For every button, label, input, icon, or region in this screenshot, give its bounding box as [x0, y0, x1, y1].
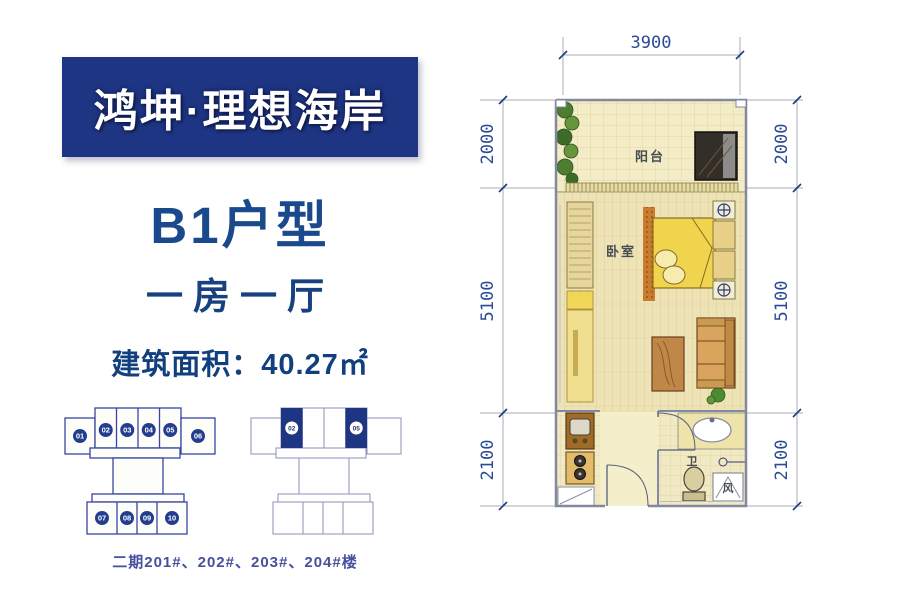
highlight-unit-02: 02	[288, 426, 296, 433]
building-keyplan-all-units: 01 02 03 04 05 06 07 08 09 10	[57, 398, 223, 540]
right-wall-cabinet-2	[713, 251, 735, 279]
area-label: 建筑面积：40.27㎡	[0, 341, 480, 383]
hall-floor	[600, 412, 658, 505]
kitchen-sink-unit	[566, 413, 594, 449]
bath-sink-counter	[678, 413, 746, 449]
flyer-page: 鸿坤·理想海岸 B1户型 一房一厅 建筑面积：40.27㎡ 01 02 03 0…	[0, 0, 900, 600]
dim-width-label: 3900	[631, 33, 672, 53]
right-wall-cabinet-1	[713, 221, 735, 249]
building-footprint-outline	[251, 408, 401, 534]
unit-03: 03	[123, 426, 131, 435]
unit-type-title: B1户型	[0, 184, 480, 258]
vent-label: 风	[723, 481, 734, 495]
dim-right-5100: 5100	[772, 281, 792, 322]
tv-cabinet	[567, 310, 593, 402]
vent-shaft: 风	[713, 473, 743, 501]
brand-name: 鸿坤·理想海岸	[94, 75, 387, 139]
bed	[653, 218, 715, 288]
dimension-top: 3900	[559, 33, 744, 95]
coffee-table	[652, 337, 684, 391]
floor-plan: 3900 2000 5100 2100 2000 5100 2100	[460, 15, 805, 545]
unit-06: 06	[194, 432, 202, 441]
layout-description: 一房一厅	[0, 266, 480, 320]
stove	[566, 452, 594, 484]
dim-left-2100: 2100	[478, 440, 498, 481]
brand-banner: 鸿坤·理想海岸	[62, 57, 418, 157]
balcony-window-band	[566, 183, 738, 192]
corner-unit	[567, 291, 593, 309]
balcony-cabinet	[695, 132, 737, 180]
bedroom-label: 卧室	[606, 244, 636, 259]
dim-left-5100: 5100	[478, 281, 498, 322]
unit-07: 07	[98, 514, 106, 523]
wardrobe	[567, 202, 593, 288]
toilet	[683, 467, 705, 501]
bedside-table-top	[713, 201, 735, 219]
unit-08: 08	[123, 514, 131, 523]
kitchen-corner-window	[558, 487, 594, 506]
unit-05: 05	[166, 426, 174, 435]
bathroom-label: 卫	[687, 455, 698, 468]
building-footprint	[65, 408, 215, 534]
dimension-right: 2000 5100 2100	[746, 96, 803, 510]
building-keyplan-b1-highlight: 02 05	[243, 398, 409, 540]
buildings-caption: 二期201#、202#、203#、204#楼	[0, 551, 470, 572]
highlight-unit-05: 05	[353, 426, 361, 433]
dim-right-2000: 2000	[772, 124, 792, 165]
unit-10: 10	[168, 514, 176, 523]
dimension-left: 2000 5100 2100	[478, 96, 556, 510]
unit-02: 02	[102, 426, 110, 435]
sofa	[697, 318, 735, 388]
unit-09: 09	[143, 514, 151, 523]
unit-01: 01	[76, 432, 84, 441]
dim-right-2100: 2100	[772, 440, 792, 481]
unit-04: 04	[145, 426, 154, 435]
dim-left-2000: 2000	[478, 124, 498, 165]
balcony-label: 阳台	[635, 149, 665, 164]
bedside-table-bottom	[713, 281, 735, 299]
